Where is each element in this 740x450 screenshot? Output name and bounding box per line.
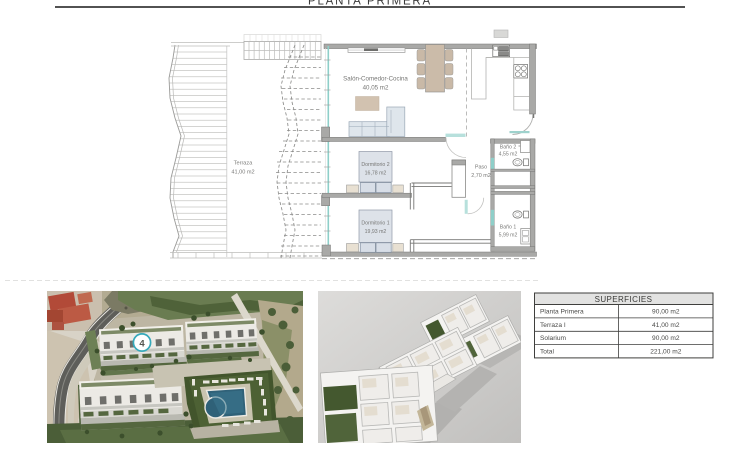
svg-text:2,70 m2: 2,70 m2: [471, 173, 490, 179]
svg-text:4: 4: [139, 338, 145, 349]
svg-text:Planta Primera: Planta Primera: [540, 309, 584, 316]
svg-text:5,99 m2: 5,99 m2: [499, 233, 518, 239]
svg-text:Dormitorio 2: Dormitorio 2: [361, 162, 389, 168]
svg-text:19,93 m2: 19,93 m2: [365, 229, 387, 235]
svg-text:Paso: Paso: [475, 165, 487, 171]
svg-text:Terraza I: Terraza I: [540, 322, 566, 329]
svg-text:4,55 m2: 4,55 m2: [499, 152, 518, 158]
svg-text:41,00 m2: 41,00 m2: [652, 322, 680, 329]
svg-text:Solarium: Solarium: [540, 335, 567, 342]
svg-text:221,00 m2: 221,00 m2: [650, 349, 681, 356]
svg-text:Salón-Comedor-Cocina: Salón-Comedor-Cocina: [343, 76, 408, 83]
svg-text:41,00 m2: 41,00 m2: [231, 170, 254, 176]
svg-text:16,78 m2: 16,78 m2: [365, 171, 387, 177]
svg-text:SUPERFICIES: SUPERFICIES: [595, 295, 653, 304]
svg-text:90,00 m2: 90,00 m2: [652, 335, 680, 342]
svg-text:Terraza: Terraza: [234, 161, 254, 167]
svg-text:90,00 m2: 90,00 m2: [652, 309, 680, 316]
svg-text:Dormitorio 1: Dormitorio 1: [361, 221, 389, 227]
svg-text:Baño 1: Baño 1: [500, 225, 517, 231]
svg-text:Total: Total: [540, 349, 554, 356]
svg-text:Baño 2: Baño 2: [500, 145, 517, 151]
svg-text:40,05 m2: 40,05 m2: [363, 85, 389, 92]
